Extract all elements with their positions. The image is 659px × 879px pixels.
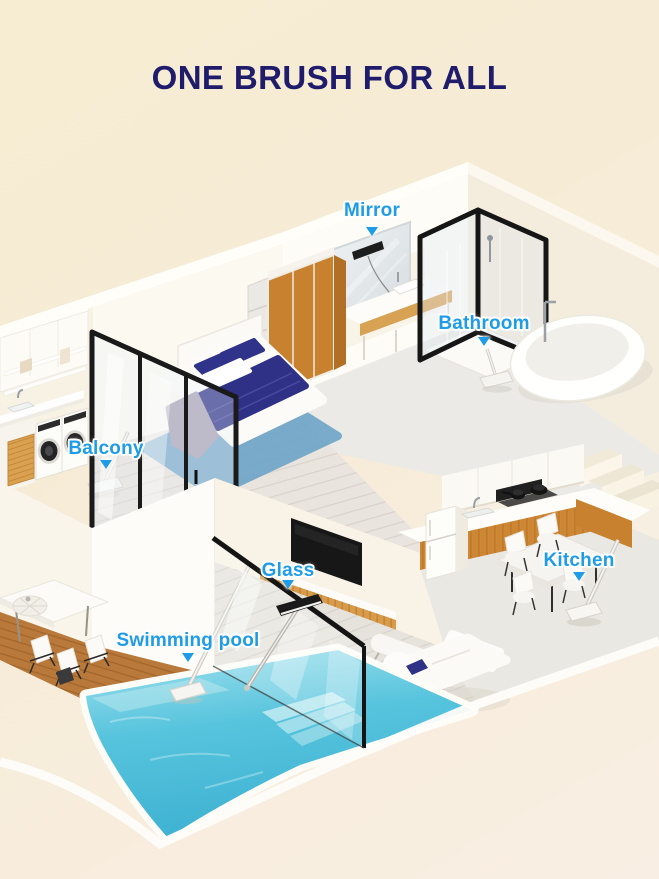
wicker-mat [8,434,34,486]
page-title: ONE BRUSH FOR ALL [0,59,659,97]
callout-glass-label: Glass [262,560,315,582]
callout-mirror-label: Mirror [344,200,400,222]
down-triangle-icon [573,572,585,581]
down-triangle-icon [182,653,194,662]
down-triangle-icon [478,337,490,346]
down-triangle-icon [282,580,294,589]
callout-balcony-label: Balcony [68,438,143,460]
callout-swimming-pool-label: Swimming pool [117,630,260,652]
callout-kitchen-label: Kitchen [543,550,614,572]
refrigerator [426,506,468,580]
down-triangle-icon [366,227,378,236]
down-triangle-icon [100,460,112,469]
product-infographic: ONE BRUSH FOR ALL Mirror Bathroom Balcon… [0,0,659,879]
callout-bathroom-label: Bathroom [438,313,529,335]
